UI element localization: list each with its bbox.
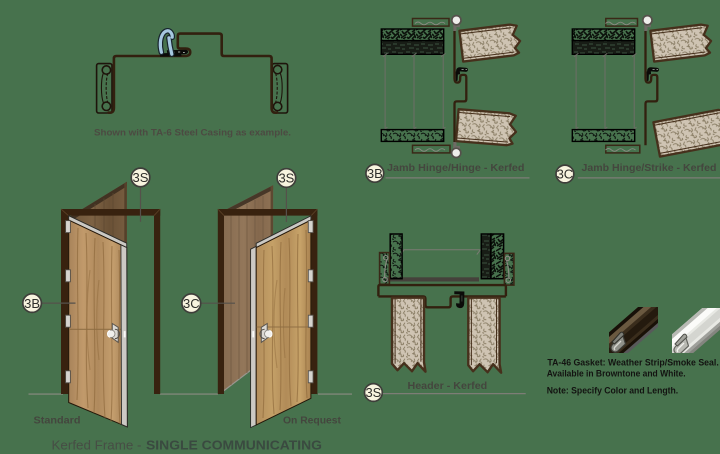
svg-text:3S: 3S	[365, 385, 381, 400]
svg-text:3S: 3S	[133, 170, 149, 185]
svg-text:3B: 3B	[24, 296, 40, 311]
svg-text:3C: 3C	[557, 167, 574, 182]
svg-text:Note: Specify Color and Length: Note: Specify Color and Length.	[547, 385, 679, 396]
svg-text:Header - Kerfed: Header - Kerfed	[408, 381, 488, 392]
svg-text:Kerfed Frame -: Kerfed Frame -	[52, 438, 142, 453]
svg-text:Jamb Hinge/Hinge - Kerfed: Jamb Hinge/Hinge - Kerfed	[387, 163, 525, 174]
svg-text:TA-46 Gasket: Weather Strip/Sm: TA-46 Gasket: Weather Strip/Smoke Seal.	[547, 357, 718, 368]
svg-text:3B: 3B	[367, 166, 383, 181]
svg-text:3S: 3S	[278, 171, 294, 186]
svg-text:Available in Browntone and Whi: Available in Browntone and White.	[547, 367, 686, 378]
svg-text:SINGLE COMMUNICATING: SINGLE COMMUNICATING	[146, 438, 322, 453]
svg-text:Shown with TA-6 Steel Casing a: Shown with TA-6 Steel Casing as example.	[94, 128, 291, 139]
svg-text:On Request: On Request	[283, 415, 342, 426]
svg-text:Standard: Standard	[34, 415, 81, 426]
svg-text:3C: 3C	[183, 296, 200, 311]
svg-text:Jamb Hinge/Strike - Kerfed: Jamb Hinge/Strike - Kerfed	[582, 163, 717, 174]
